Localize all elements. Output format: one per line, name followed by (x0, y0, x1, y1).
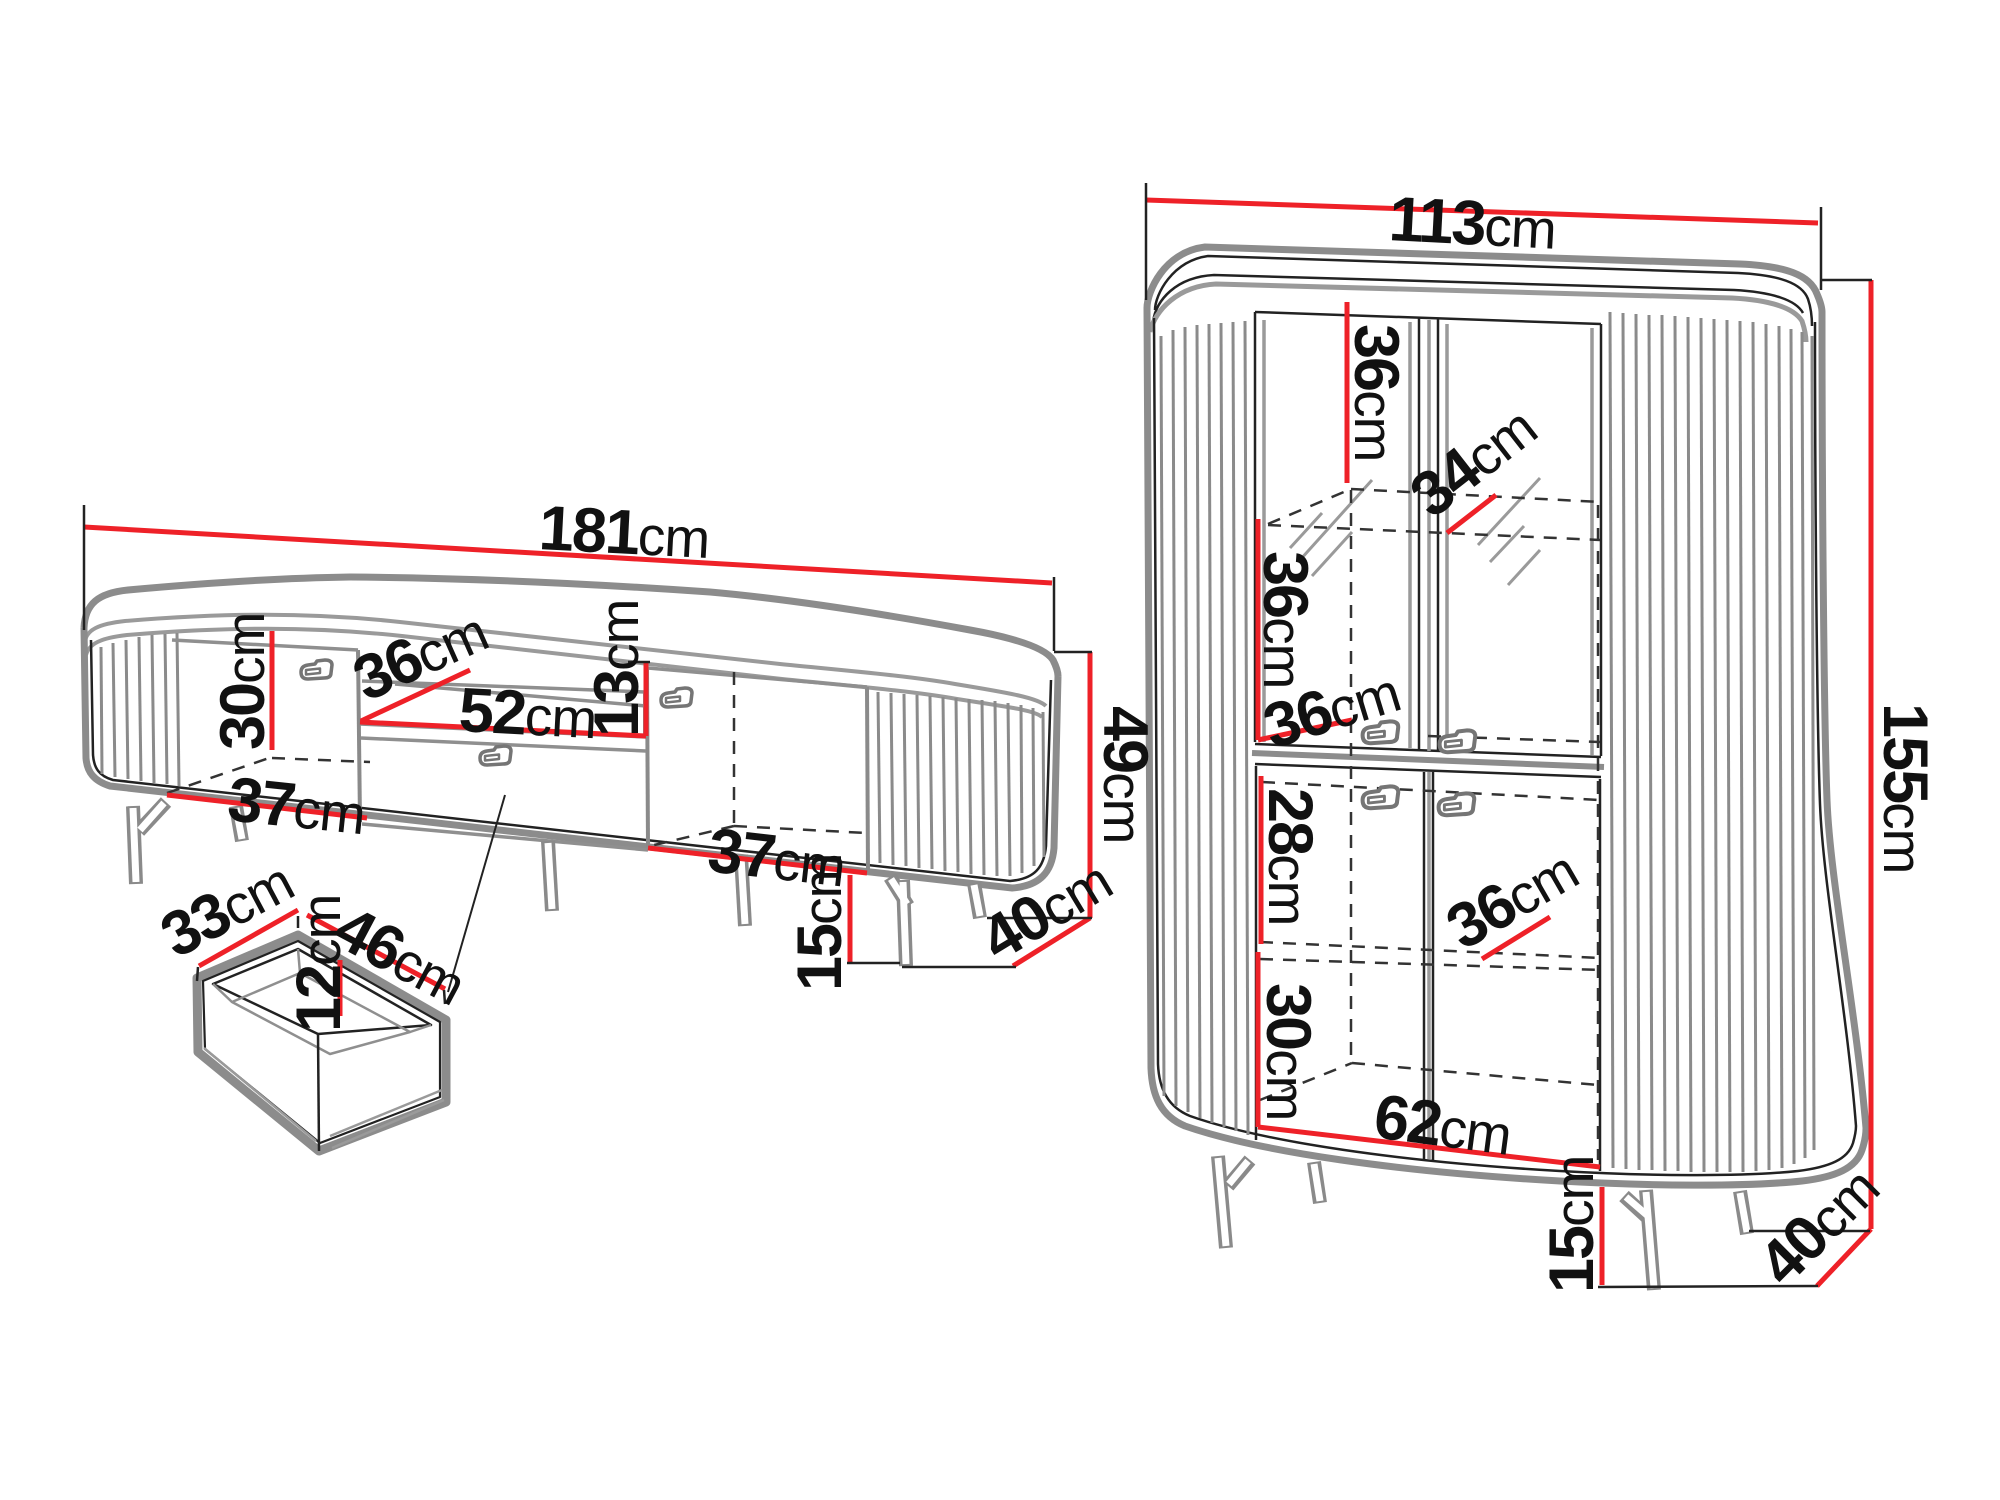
svg-text:30cm: 30cm (1253, 983, 1323, 1120)
svg-text:15cm: 15cm (1537, 1156, 1607, 1293)
svg-text:49cm: 49cm (1090, 706, 1160, 843)
svg-text:12cm: 12cm (284, 895, 354, 1032)
svg-text:36cm: 36cm (1341, 324, 1411, 461)
svg-text:30cm: 30cm (208, 613, 278, 750)
svg-text:52cm: 52cm (457, 675, 598, 752)
svg-text:28cm: 28cm (1255, 788, 1325, 925)
svg-text:155cm: 155cm (1870, 703, 1940, 873)
svg-text:15cm: 15cm (785, 854, 855, 991)
svg-text:13cm: 13cm (582, 600, 652, 737)
svg-text:36cm: 36cm (1250, 551, 1320, 688)
